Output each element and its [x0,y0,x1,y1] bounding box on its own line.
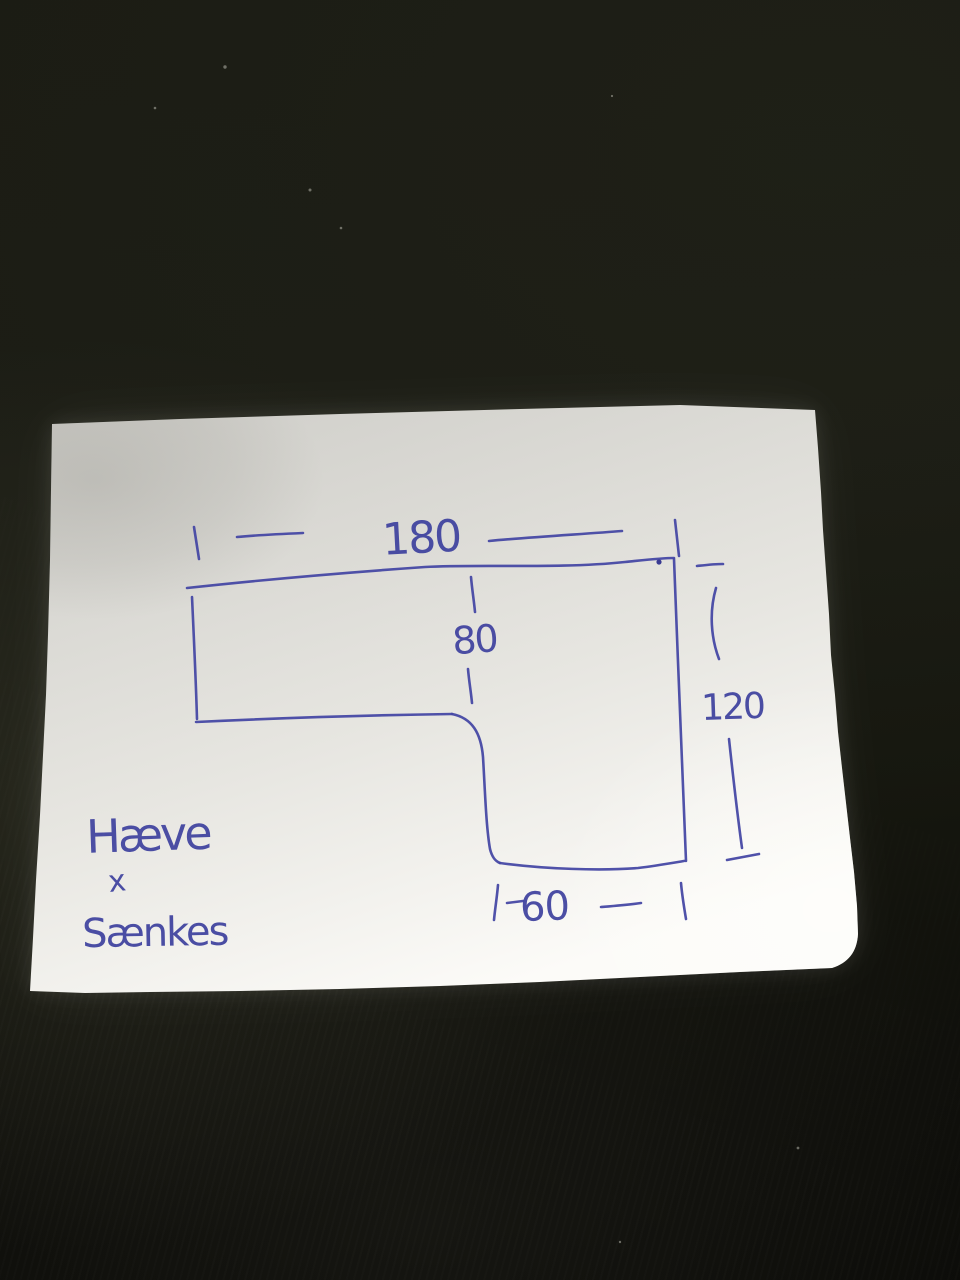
note-line-3: Sænkes [82,909,228,958]
note-line-2: x [106,863,127,900]
photo-scene: 180 80 120 60 Hæve x [0,0,960,1280]
dim-right-height-label: 120 [700,686,764,729]
dim-foot-width-label: 60 [519,883,569,931]
dim-inner-depth-label: 80 [451,616,498,663]
ink-blot [656,559,661,564]
desk-sketch-photo: 180 80 120 60 Hæve x [0,0,960,1280]
note-line-1: Hæve [85,806,211,864]
dim-top-width-label: 180 [381,511,462,566]
